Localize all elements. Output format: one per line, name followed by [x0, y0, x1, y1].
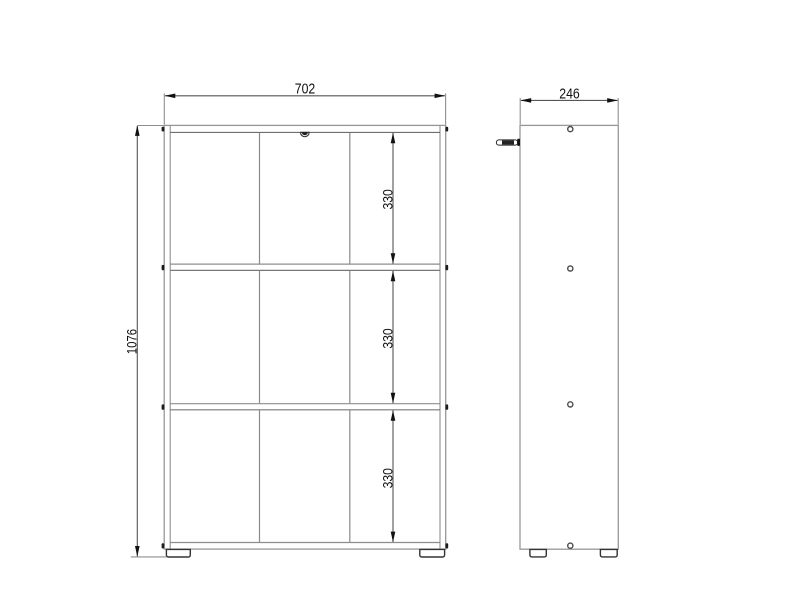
- svg-text:330: 330: [380, 189, 396, 209]
- svg-text:330: 330: [380, 468, 396, 488]
- svg-text:702: 702: [295, 80, 316, 96]
- svg-text:1076: 1076: [124, 329, 139, 354]
- svg-text:246: 246: [559, 85, 580, 101]
- svg-text:330: 330: [380, 328, 396, 348]
